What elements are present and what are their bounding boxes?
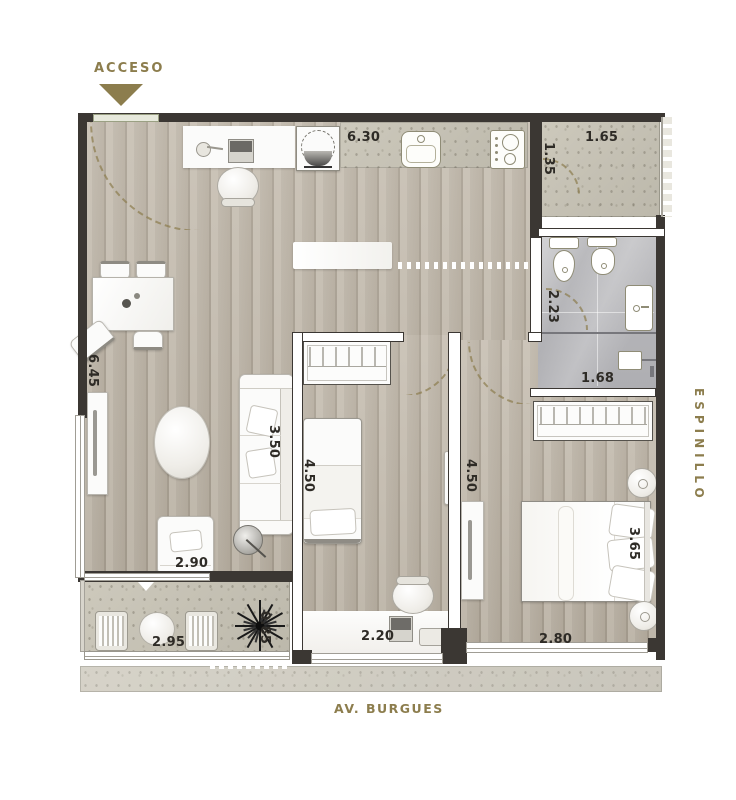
dim-kitchen: 6.30	[347, 131, 380, 144]
floor-plan: ACCESO ESPINILLO AV. BURGUES	[0, 0, 736, 800]
entry-door	[93, 114, 159, 122]
dim-bathroom-depth: 2.23	[546, 290, 559, 323]
balcony-railing-dashed	[210, 661, 290, 669]
dim-lounge: 2.90	[175, 557, 208, 570]
dim-terrace-width: 1.65	[585, 131, 618, 144]
wall-bathroom-top	[538, 228, 665, 237]
dim-sofa: 3.50	[267, 425, 280, 458]
wall-bedroom1-bedroom2	[448, 332, 461, 644]
wall-bedroom1-top	[292, 332, 404, 342]
dim-planter: 0.85	[258, 611, 271, 644]
toilet-icon	[591, 248, 615, 275]
dining-table	[92, 277, 174, 331]
wall-living-bedroom1	[292, 332, 303, 662]
dim-terrace-depth: 1.35	[542, 142, 555, 175]
window-bedroom1	[311, 653, 443, 664]
laptop-icon	[228, 139, 254, 163]
exterior-ledge	[80, 666, 662, 692]
wall-corner	[648, 638, 665, 652]
dim-bedroom2-length: 4.50	[464, 459, 477, 492]
nightstand-icon	[629, 601, 659, 631]
shower-icon	[618, 351, 642, 370]
street-label-espinillo: ESPINILLO	[692, 388, 706, 503]
bidet-tank	[549, 237, 579, 249]
dim-bed-width: 3.65	[627, 527, 640, 560]
access-arrow-icon	[99, 84, 143, 106]
coffee-table	[154, 406, 210, 479]
nightstand-icon	[627, 468, 657, 498]
dining-chair-icon	[133, 331, 163, 350]
kitchen-island	[293, 242, 392, 269]
wall-corner	[441, 628, 467, 664]
vanity-sink-icon	[625, 285, 653, 331]
wardrobe-icon	[533, 401, 653, 441]
shower-valve	[650, 366, 654, 377]
wall-right	[656, 215, 665, 660]
street-label-av-burgues: AV. BURGUES	[334, 701, 444, 716]
wardrobe-icon	[303, 341, 391, 385]
kitchen-sink-icon	[401, 131, 441, 168]
balcony-railing	[84, 651, 290, 660]
shower-divider	[540, 332, 656, 334]
dim-living-length: 6.45	[86, 354, 99, 387]
ceiling-dash-line	[398, 262, 532, 269]
bedroom2-door-arc	[468, 342, 532, 404]
wall-living-bathroom	[530, 237, 542, 340]
dim-desk: 2.20	[361, 630, 394, 643]
outdoor-chair-icon	[95, 611, 128, 651]
dim-bedroom1-length: 4.50	[302, 459, 315, 492]
window-living-left	[75, 415, 85, 578]
wall-kitchen-terrace	[530, 113, 542, 237]
wall-corner	[292, 650, 312, 664]
desk-chair-icon	[392, 578, 434, 614]
desk-chair-icon	[217, 167, 259, 205]
tv-console	[87, 392, 108, 495]
dim-bedroom2-width: 2.80	[539, 633, 572, 646]
shower-arm	[642, 359, 656, 361]
terrace-railing	[661, 117, 672, 217]
door-direction-marker	[138, 582, 154, 591]
washing-machine-icon	[296, 126, 340, 171]
toilet-tank	[587, 237, 617, 247]
dim-bathroom-width: 1.68	[581, 372, 614, 385]
access-label: ACCESO	[94, 61, 164, 76]
entry-door-arc	[90, 122, 200, 230]
stove-icon	[490, 130, 525, 169]
dim-balcony: 2.95	[152, 636, 185, 649]
sliding-door-balcony	[84, 573, 210, 581]
wall-top-terrace	[537, 113, 665, 122]
wall-bathroom-bottom	[530, 388, 656, 397]
outdoor-chair-icon	[185, 611, 218, 651]
balcony-side-wall	[80, 580, 85, 652]
dresser-tv-unit	[461, 501, 484, 600]
wall-hall-stub	[528, 332, 542, 342]
